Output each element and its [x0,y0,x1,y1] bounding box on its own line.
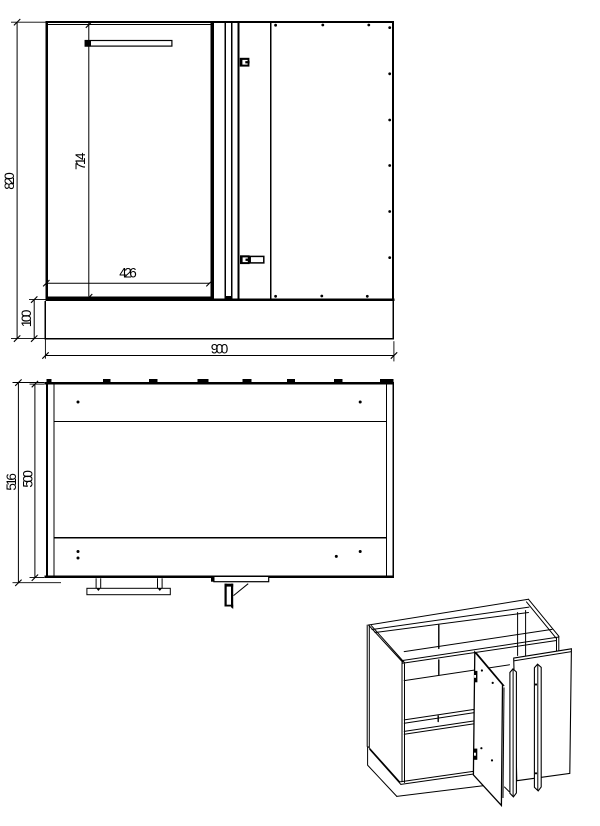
svg-text:500: 500 [21,470,36,488]
svg-text:714: 714 [73,152,88,170]
svg-text:426: 426 [119,266,137,281]
svg-text:820: 820 [2,172,17,190]
svg-text:100: 100 [19,310,34,328]
svg-text:900: 900 [211,342,229,357]
svg-text:516: 516 [4,473,19,491]
